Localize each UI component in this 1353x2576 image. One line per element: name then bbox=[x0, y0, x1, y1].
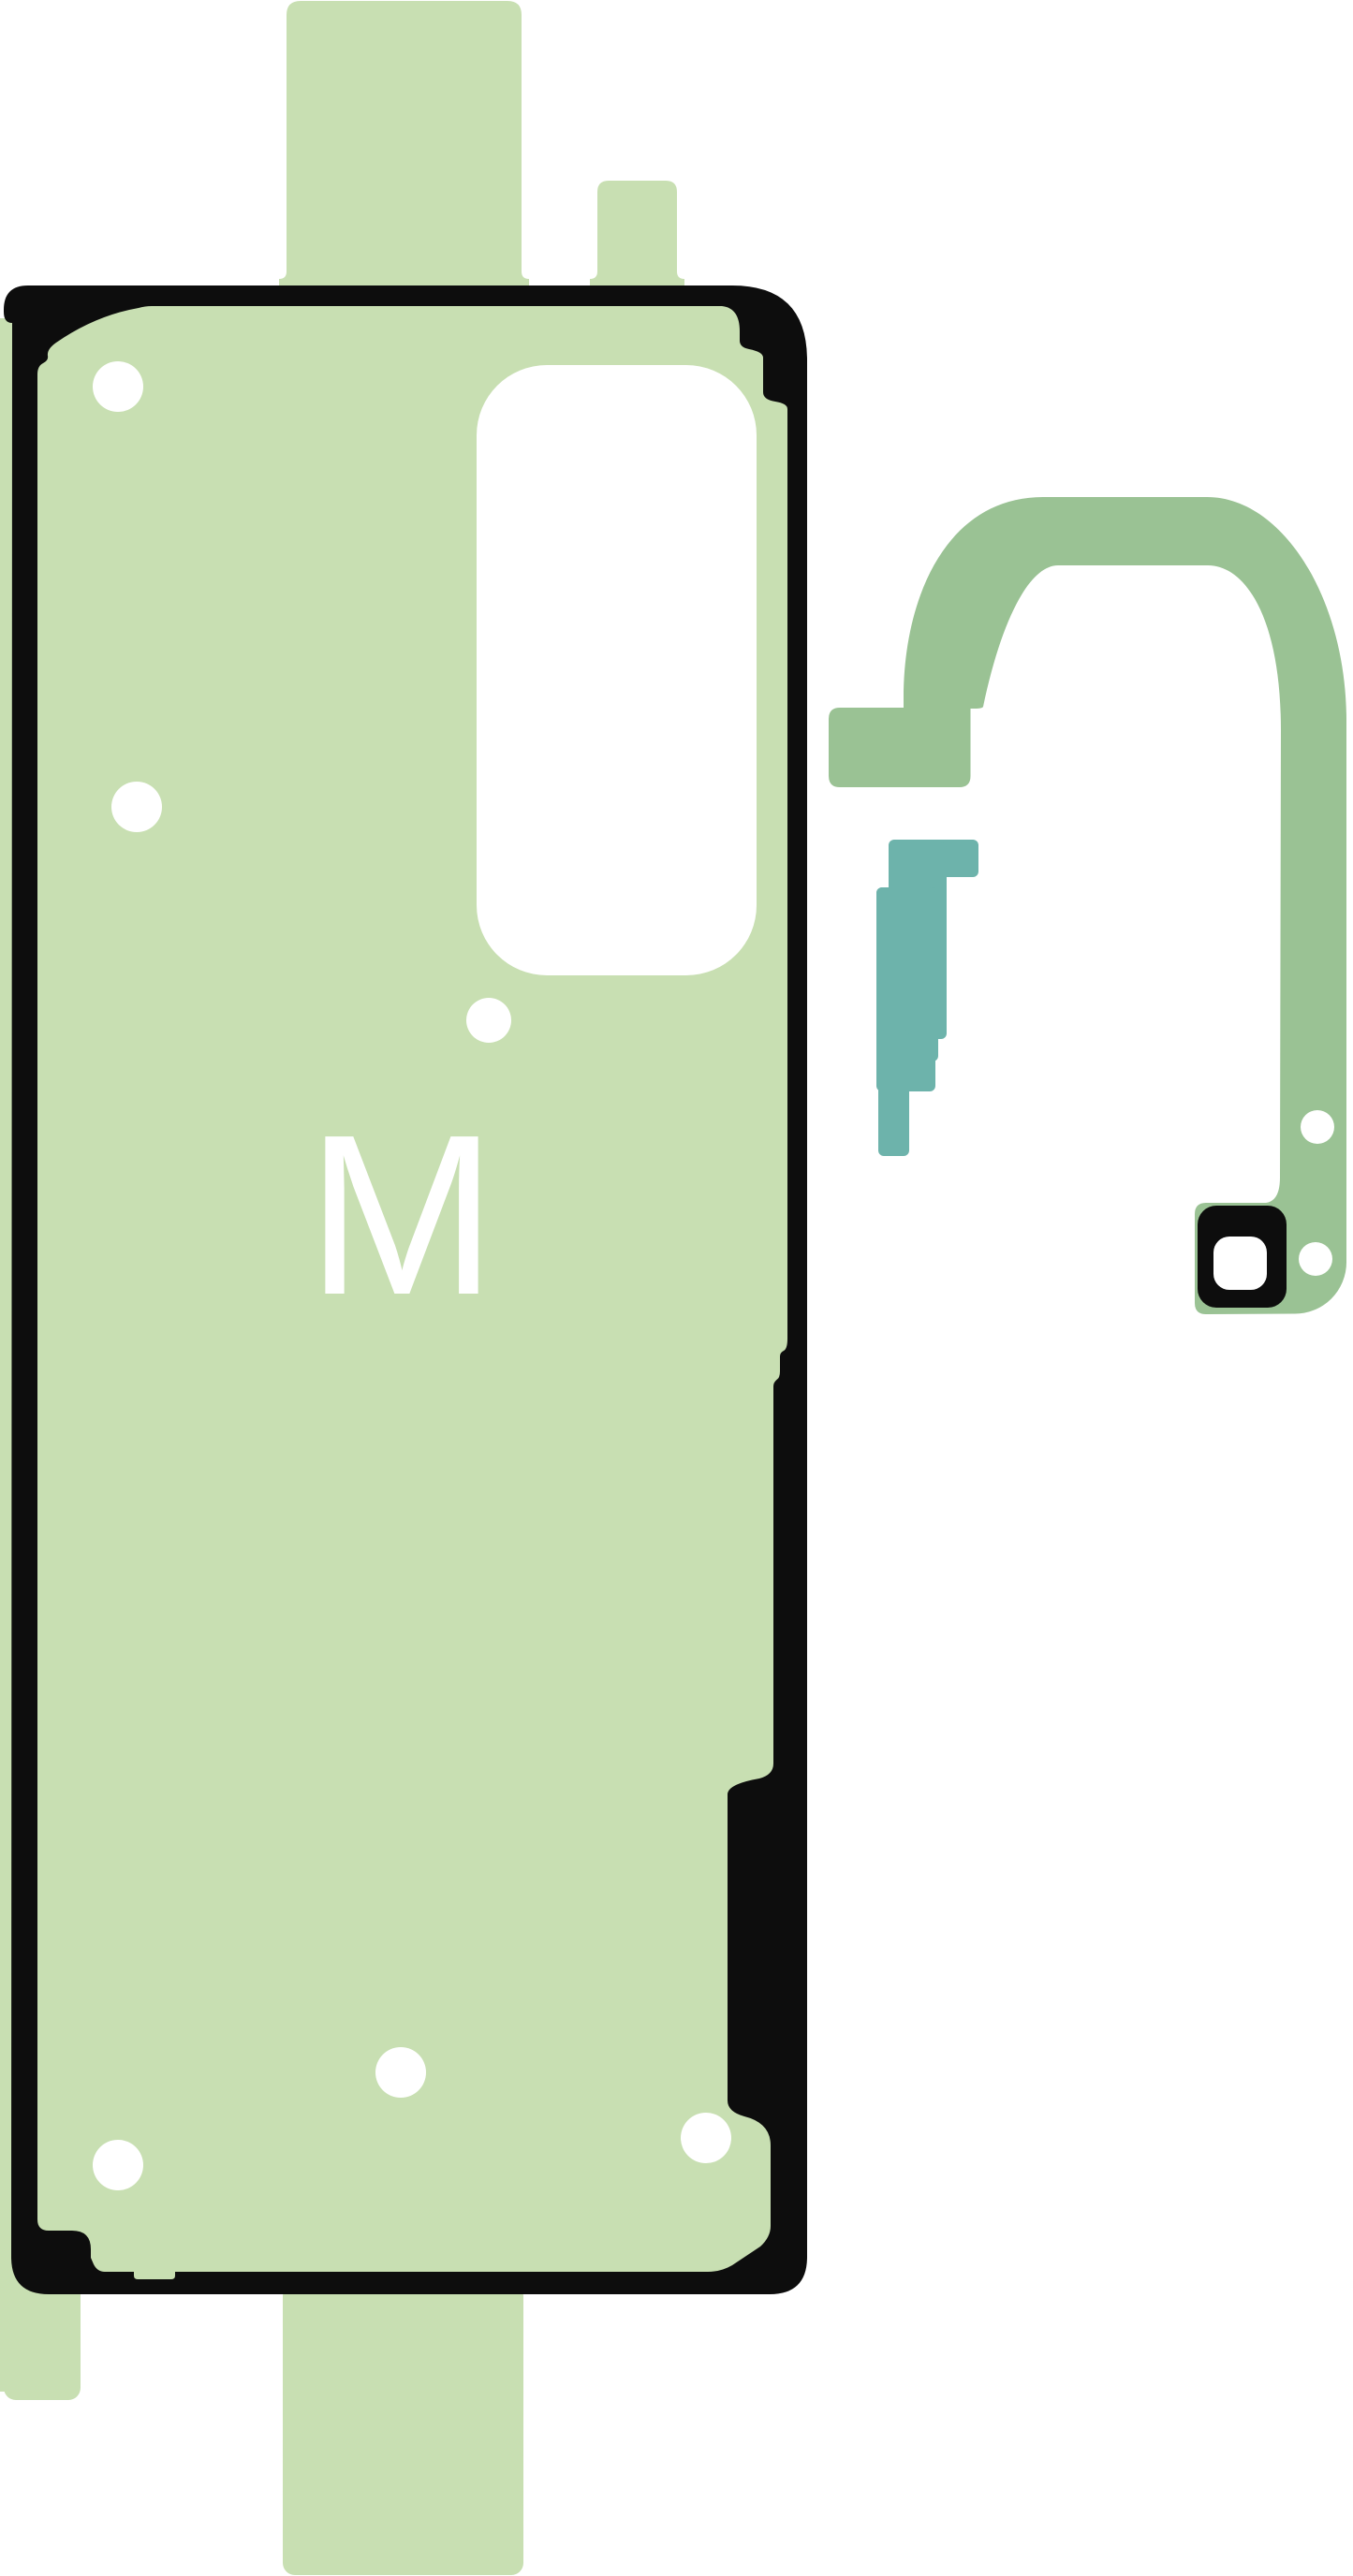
svg-text:M: M bbox=[306, 1087, 496, 1342]
